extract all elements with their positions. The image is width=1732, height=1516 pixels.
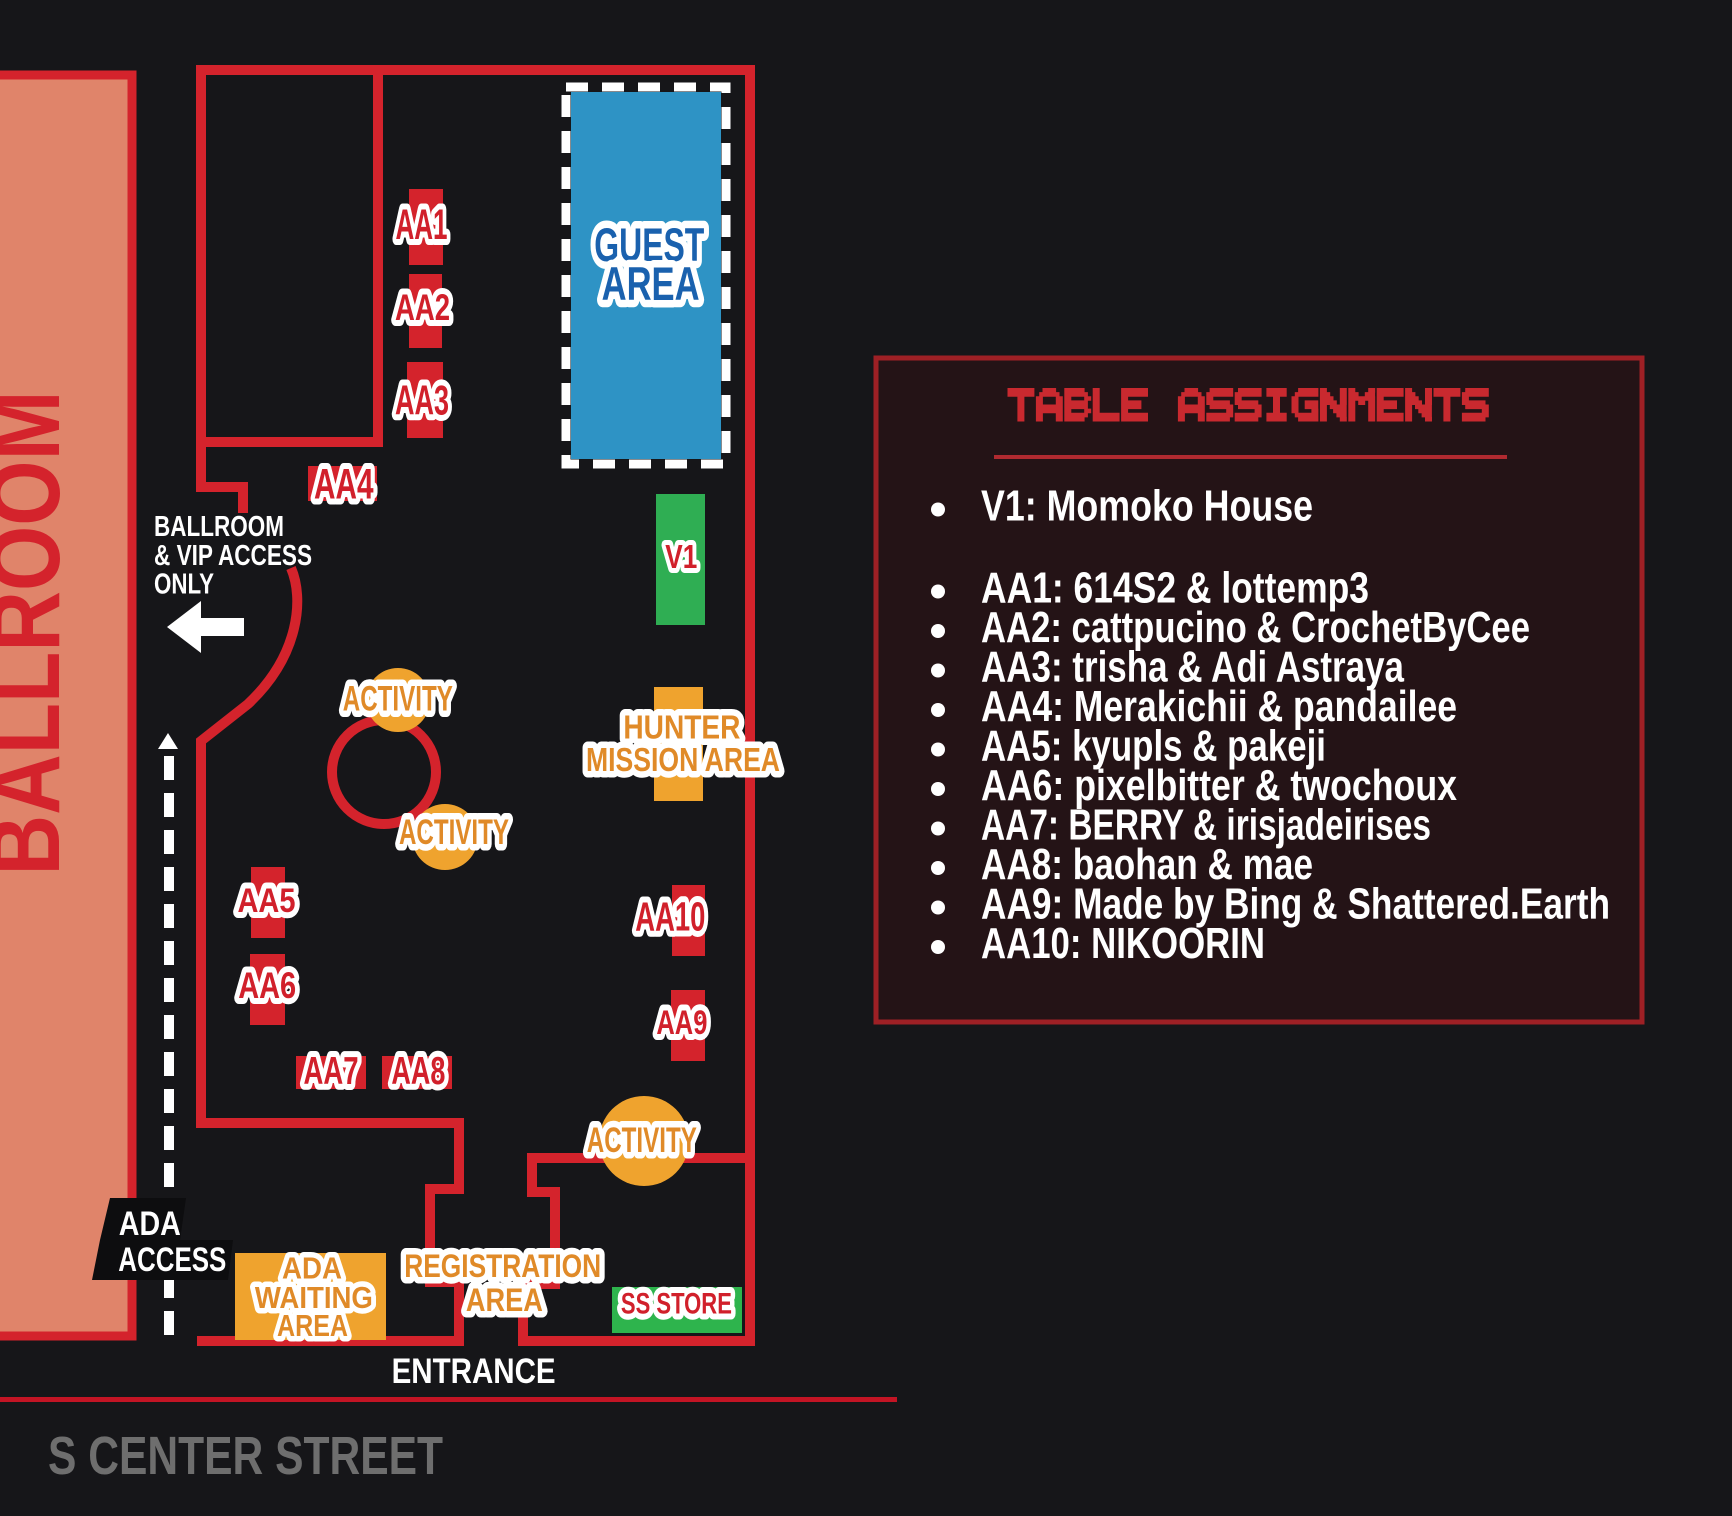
svg-text:AA5: AA5: [238, 882, 296, 920]
svg-text:ACTIVITY: ACTIVITY: [399, 812, 509, 852]
svg-text:AREA: AREA: [466, 1282, 543, 1318]
svg-text:ACTIVITY: ACTIVITY: [587, 1120, 697, 1160]
svg-text:BALLROOM: BALLROOM: [154, 511, 284, 543]
svg-text:ACTIVITY: ACTIVITY: [343, 679, 453, 719]
svg-text:SS STORE: SS STORE: [621, 1288, 732, 1321]
svg-text:AA4: AA4: [314, 461, 374, 509]
svg-text:S CENTER STREET: S CENTER STREET: [48, 1426, 443, 1486]
svg-text:HUNTER: HUNTER: [623, 709, 740, 746]
svg-text:AA6: AA6: [238, 965, 296, 1006]
svg-text:ONLY: ONLY: [154, 569, 214, 601]
svg-text:ADA: ADA: [119, 1205, 181, 1243]
svg-text:REGISTRATION: REGISTRATION: [404, 1248, 601, 1284]
svg-text:& VIP ACCESS: & VIP ACCESS: [154, 540, 312, 572]
svg-text:AREA: AREA: [277, 1308, 348, 1343]
svg-text:AA2: AA2: [395, 287, 450, 328]
svg-text:AREA: AREA: [602, 258, 700, 311]
svg-text:AA10: NIKOORIN: AA10: NIKOORIN: [981, 920, 1265, 968]
svg-text:ENTRANCE: ENTRANCE: [392, 1351, 556, 1391]
svg-text:AA7: AA7: [304, 1050, 359, 1093]
svg-text:MISSION AREA: MISSION AREA: [586, 741, 780, 778]
svg-text:AA1: AA1: [396, 201, 448, 248]
svg-text:V1: Momoko House: V1: Momoko House: [981, 483, 1313, 531]
svg-text:AA3: AA3: [395, 377, 449, 424]
svg-text:V1: V1: [665, 539, 697, 576]
svg-text:AA10: AA10: [635, 894, 705, 940]
svg-text:ACCESS: ACCESS: [118, 1241, 226, 1279]
svg-text:AA9: AA9: [656, 1004, 707, 1042]
svg-text:AA8: AA8: [391, 1050, 445, 1093]
svg-text:BALLROOM: BALLROOM: [0, 391, 81, 876]
